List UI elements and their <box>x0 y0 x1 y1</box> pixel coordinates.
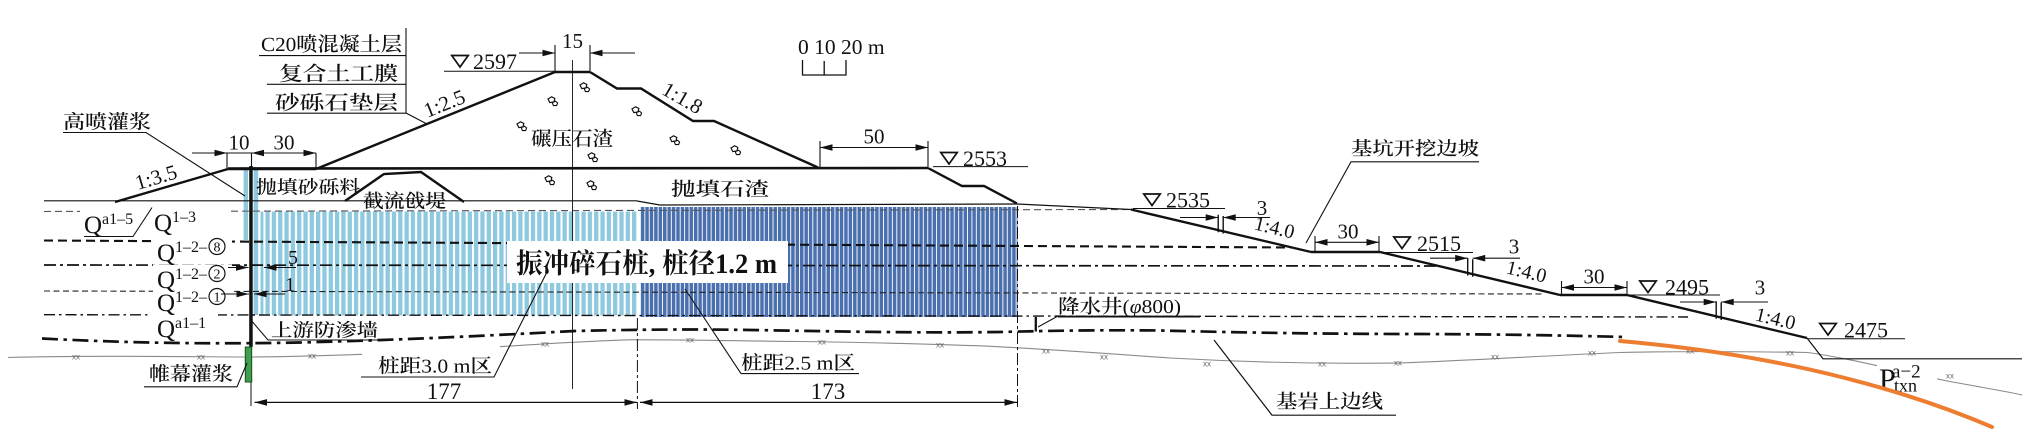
svg-text:xx: xx <box>1588 349 1596 358</box>
svg-text:xx: xx <box>541 340 549 349</box>
svg-text:xx: xx <box>1100 353 1108 362</box>
svg-text:xx: xx <box>686 336 694 345</box>
svg-text:2495: 2495 <box>1665 275 1709 300</box>
svg-text:1: 1 <box>285 274 295 296</box>
svg-text:3: 3 <box>1755 276 1766 300</box>
svg-text:xx: xx <box>1042 347 1050 356</box>
svg-text:10: 10 <box>229 131 250 155</box>
svg-text:50: 50 <box>864 125 885 149</box>
svg-text:3: 3 <box>1509 235 1520 259</box>
svg-text:xx: xx <box>1491 353 1499 362</box>
svg-text:xx: xx <box>1786 349 1794 358</box>
svg-text:xx: xx <box>197 353 205 362</box>
svg-text:Q: Q <box>154 210 172 237</box>
svg-text:1–3: 1–3 <box>172 209 196 226</box>
svg-text:xx: xx <box>308 352 316 361</box>
svg-text:2: 2 <box>214 268 221 283</box>
svg-text:xx: xx <box>72 353 80 362</box>
svg-text:xx: xx <box>936 341 944 350</box>
svg-text:0 10 20 m: 0 10 20 m <box>798 35 885 59</box>
svg-text:1–2–: 1–2– <box>175 239 208 256</box>
svg-text:xx: xx <box>1318 360 1326 369</box>
svg-text:Q: Q <box>157 290 175 317</box>
svg-text:xx: xx <box>1946 372 1954 381</box>
svg-text:2553: 2553 <box>963 146 1007 171</box>
svg-text:15: 15 <box>562 29 583 53</box>
svg-text:1: 1 <box>214 291 221 306</box>
svg-text:xx: xx <box>1203 360 1211 369</box>
svg-text:xx: xx <box>1394 359 1402 368</box>
svg-text:xx: xx <box>818 338 826 347</box>
svg-text:3: 3 <box>1257 196 1268 220</box>
svg-text:30: 30 <box>1584 265 1605 289</box>
svg-text:a1–1: a1–1 <box>175 315 206 332</box>
svg-text:173: 173 <box>811 379 846 404</box>
svg-text:a1–5: a1–5 <box>102 211 133 228</box>
svg-text:Q: Q <box>84 212 102 239</box>
svg-text:2597: 2597 <box>473 49 517 74</box>
svg-text:30: 30 <box>274 131 295 155</box>
svg-text:30: 30 <box>1338 220 1359 244</box>
svg-text:Q: Q <box>157 316 175 343</box>
svg-text:8: 8 <box>214 241 221 256</box>
svg-text:177: 177 <box>427 379 462 404</box>
svg-text:1–2–: 1–2– <box>175 289 208 306</box>
svg-text:1–2–: 1–2– <box>175 266 208 283</box>
svg-text:Q: Q <box>157 240 175 267</box>
svg-text:5: 5 <box>288 247 298 269</box>
